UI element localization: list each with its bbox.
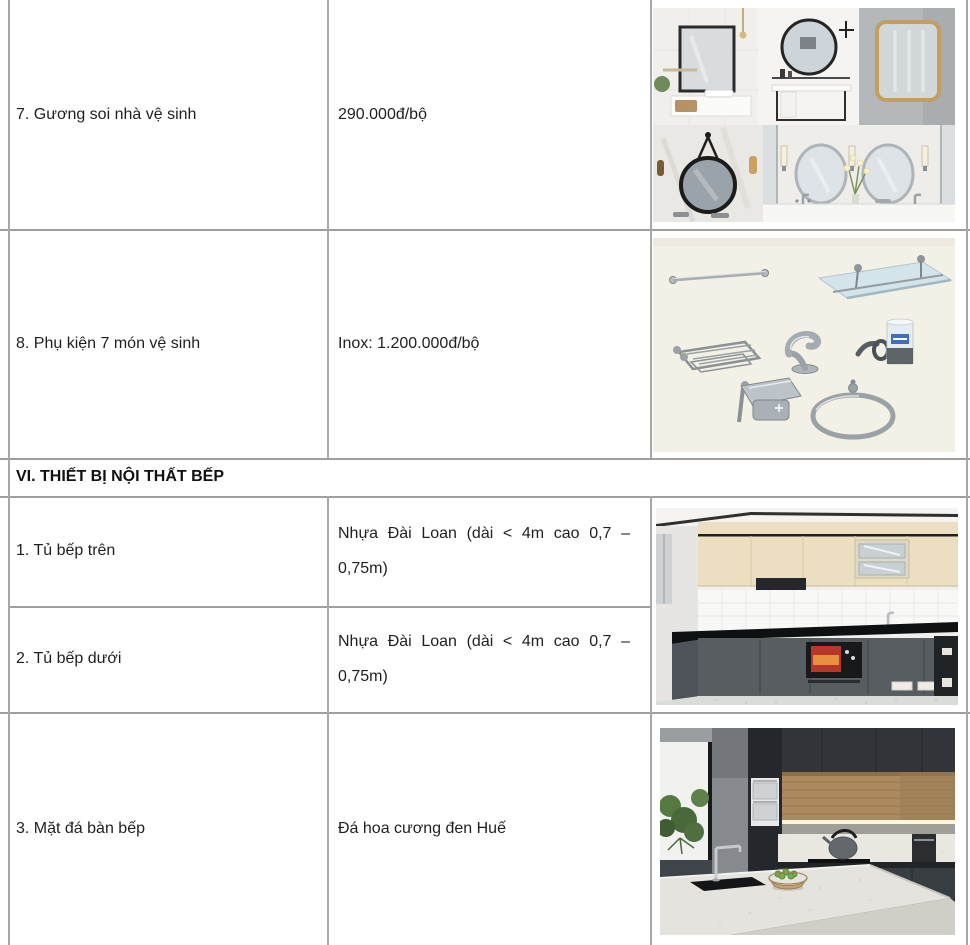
- item-label: 7. Gương soi nhà vệ sinh: [16, 106, 316, 124]
- item-spec-cell: Đá hoa cương đen Huế: [338, 712, 630, 945]
- item-label: 2. Tủ bếp dưới: [16, 650, 316, 668]
- stainless-accessory-set: [653, 238, 955, 452]
- item-name-cell: 7. Gương soi nhà vệ sinh: [16, 0, 316, 229]
- item-price-cell: 290.000đ/bộ: [338, 0, 630, 229]
- item-label: 1. Tủ bếp trên: [16, 542, 316, 560]
- item-price: 290.000đ/bộ: [338, 106, 630, 124]
- item-name-cell: 2. Tủ bếp dưới: [16, 606, 316, 712]
- item-name-cell: 3. Mặt đá bàn bếp: [16, 712, 316, 945]
- bathroom-accessories-image: [653, 238, 955, 452]
- section-header-title: VI. THIẾT BỊ NỘI THẤT BẾP: [16, 468, 946, 486]
- item-spec-cell: Nhựa Đài Loan (dài < 4m cao 0,7 – 0,75m): [338, 496, 630, 606]
- bathroom-mirrors-image: [653, 8, 955, 222]
- item-label: 8. Phụ kiện 7 món vệ sinh: [16, 335, 316, 353]
- section-header-cell: VI. THIẾT BỊ NỘI THẤT BẾP: [16, 458, 946, 496]
- table-left-border: [8, 0, 10, 945]
- kitchen-cabinets-photo: [656, 508, 958, 705]
- column-border: [650, 496, 652, 945]
- price-list-table: 7. Gương soi nhà vệ sinh 290.000đ/bộ: [0, 0, 970, 945]
- column-border: [650, 0, 652, 458]
- item-price: Inox: 1.200.000đ/bộ: [338, 335, 630, 353]
- item-name-cell: 1. Tủ bếp trên: [16, 496, 316, 606]
- column-border: [327, 0, 329, 458]
- item-spec-cell: Nhựa Đài Loan (dài < 4m cao 0,7 – 0,75m): [338, 606, 630, 712]
- countertop-kitchen-image: [660, 728, 955, 935]
- column-border: [327, 496, 329, 945]
- item-spec: Nhựa Đài Loan (dài < 4m cao 0,7 – 0,75m): [338, 624, 630, 694]
- item-name-cell: 8. Phụ kiện 7 món vệ sinh: [16, 229, 316, 458]
- kitchen-cabinets-image: [656, 508, 958, 705]
- item-spec: Nhựa Đài Loan (dài < 4m cao 0,7 – 0,75m): [338, 516, 630, 586]
- table-right-border: [966, 0, 968, 945]
- item-label: 3. Mặt đá bàn bếp: [16, 820, 316, 838]
- item-spec: Đá hoa cương đen Huế: [338, 820, 630, 838]
- item-price-cell: Inox: 1.200.000đ/bộ: [338, 229, 630, 458]
- bathroom-mirrors-collage: [653, 8, 955, 222]
- dark-kitchen-countertop-photo: [660, 728, 955, 935]
